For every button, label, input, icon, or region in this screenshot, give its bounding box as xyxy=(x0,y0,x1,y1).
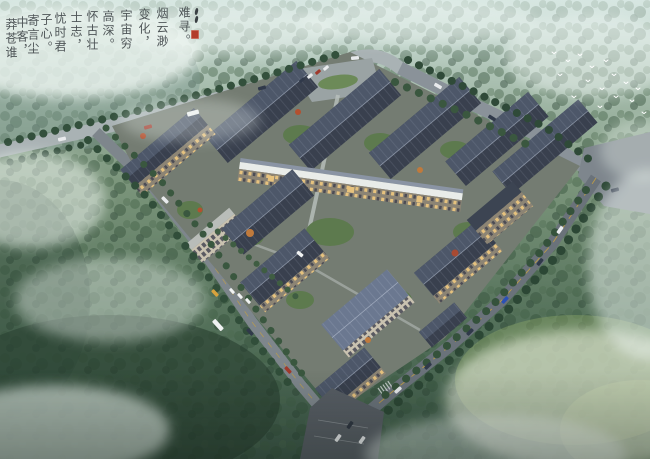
scene-svg xyxy=(0,0,650,459)
rendering-canvas: 难寻。 烟云渺 变化， 宇宙穷 高深。 怀古壮 士志， 忧时君 子心。 寄言尘 … xyxy=(0,0,650,459)
bottom-vignette xyxy=(0,370,650,459)
